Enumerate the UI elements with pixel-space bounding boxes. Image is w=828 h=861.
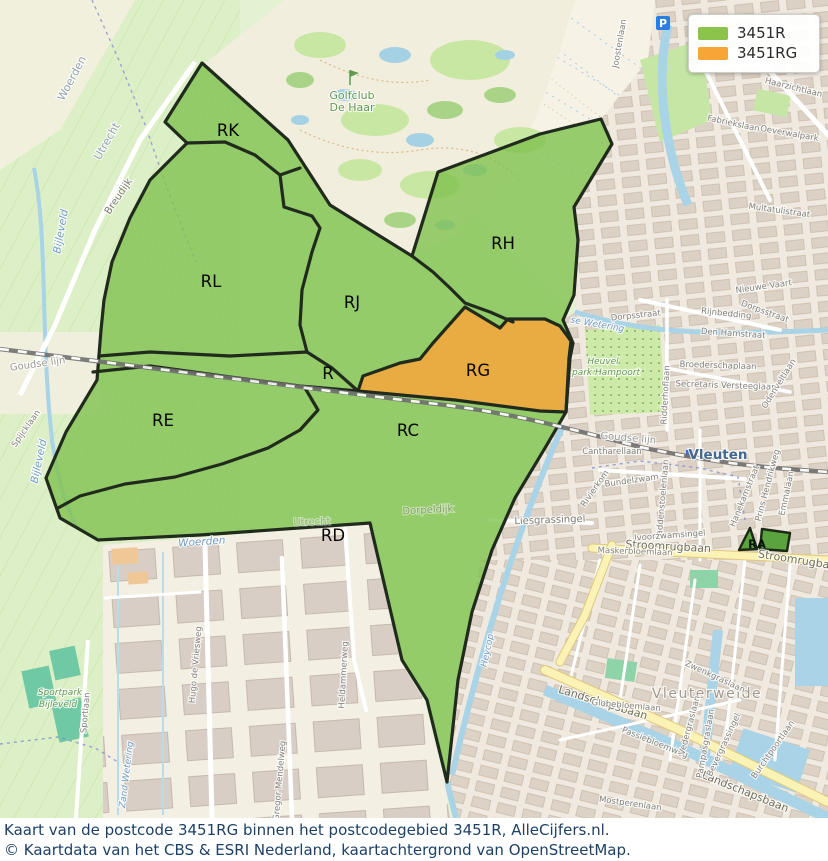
region-label-r: R	[322, 364, 333, 383]
legend: 3451R3451RG	[688, 14, 820, 73]
region-label-rh: RH	[491, 234, 515, 253]
map-label-park-hampoort: park Hampoort	[571, 368, 640, 378]
legend-item-3451r: 3451R	[698, 25, 810, 42]
region-label-rg: RG	[466, 361, 490, 380]
screenshot-root: P	[0, 0, 828, 861]
legend-swatch-3451r	[698, 27, 728, 40]
caption-line-1: Kaart van de postcode 3451RG binnen het …	[4, 820, 824, 840]
legend-label-3451rg: 3451RG	[737, 45, 797, 62]
region-label-rd: RD	[321, 526, 345, 545]
region-label-re: RE	[152, 411, 174, 430]
svg-text:P: P	[659, 17, 667, 30]
map-label-vleuten: Vleuten	[688, 447, 747, 463]
map-caption: Kaart van de postcode 3451RG binnen het …	[0, 818, 828, 861]
map-label-de-haar: De Haar	[329, 101, 374, 114]
region-label-ra: RA	[748, 537, 766, 551]
map-label-heuvel: Heuvel	[587, 357, 619, 367]
map-label-vleuterweide: Vleuterweide	[652, 686, 762, 702]
region-label-rk: RK	[217, 121, 240, 140]
region-label-rc: RC	[397, 421, 419, 440]
map-label-cantharellaan: Cantharellaan	[582, 447, 642, 457]
map-label-sportpark: Sportpark	[38, 688, 83, 698]
legend-item-3451rg: 3451RG	[698, 45, 810, 62]
map-label-bijleveld: Bijleveld	[39, 700, 78, 710]
parking-icon: P	[656, 16, 670, 30]
caption-line-2: © Kaartdata van het CBS & ESRI Nederland…	[4, 840, 824, 860]
region-label-rj: RJ	[344, 293, 360, 312]
legend-label-3451r: 3451R	[737, 25, 786, 42]
legend-swatch-3451rg	[698, 47, 728, 60]
map-canvas[interactable]: P	[0, 0, 828, 818]
region-label-rl: RL	[201, 272, 222, 291]
